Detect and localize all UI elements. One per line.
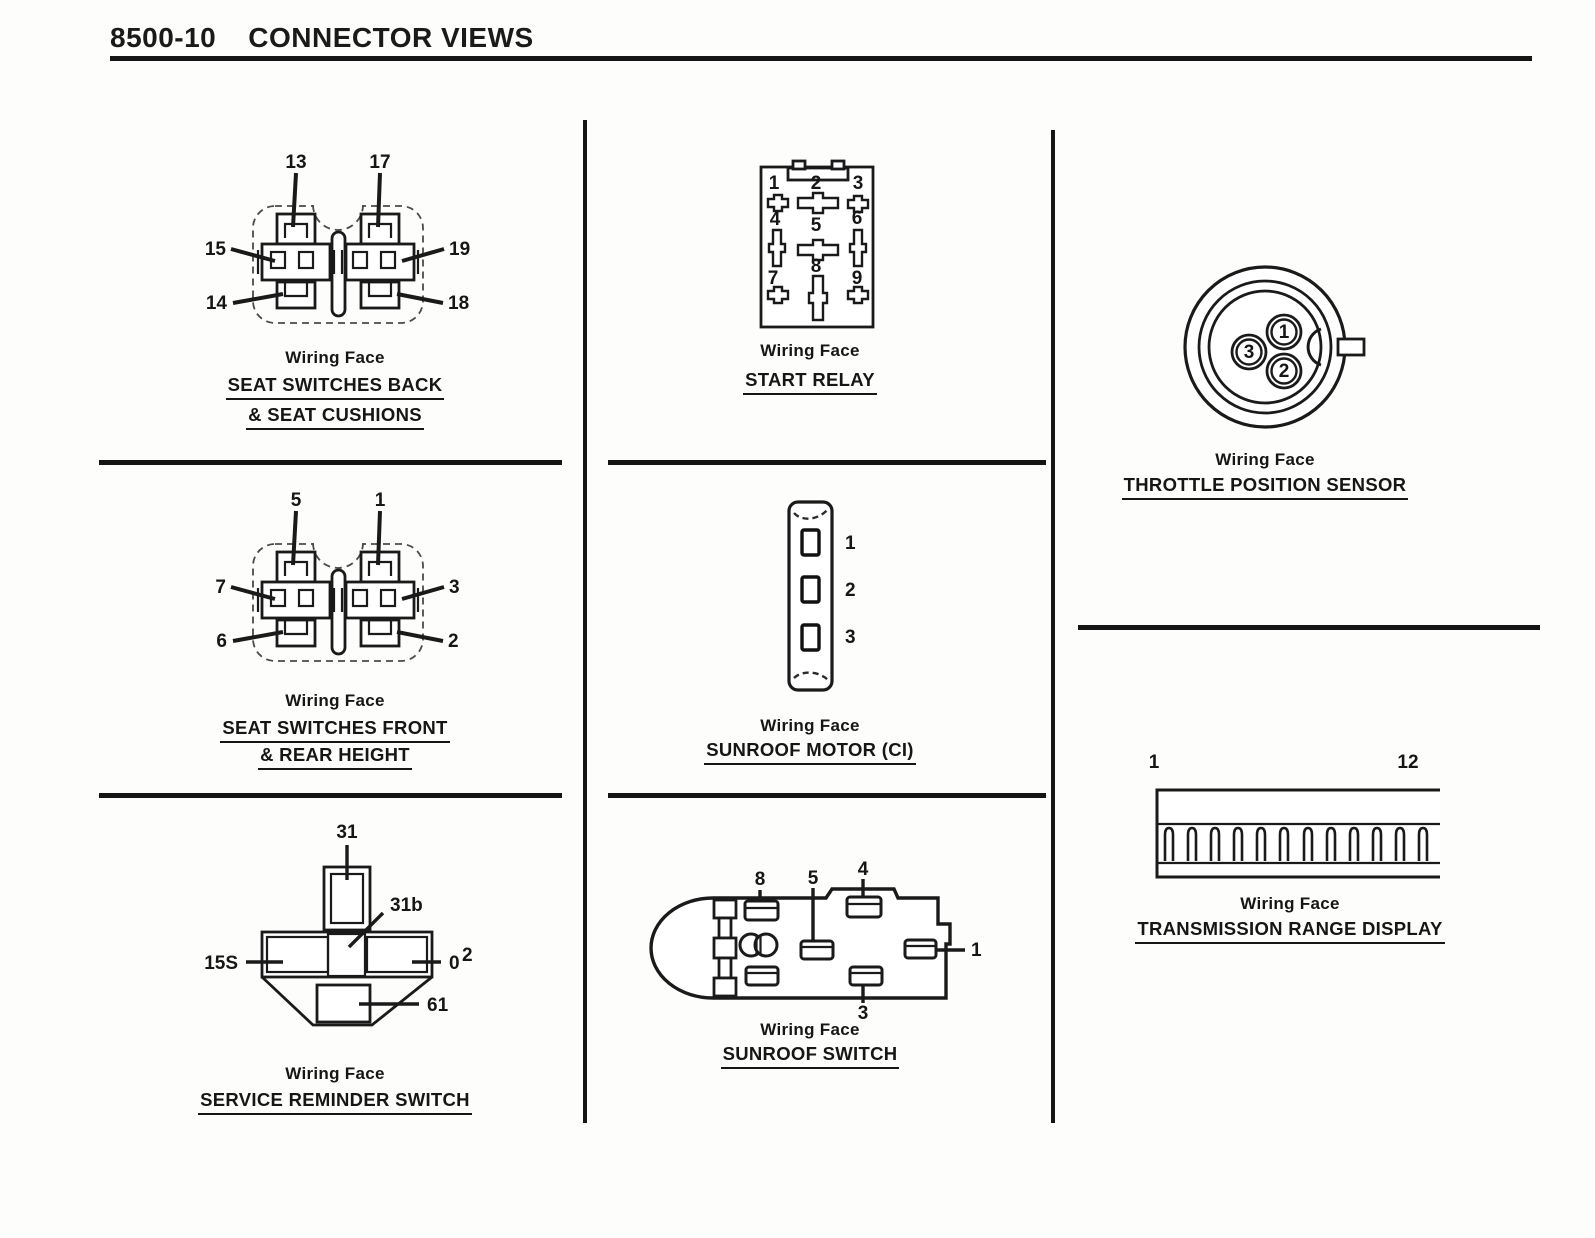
connector-title: SERVICE REMINDER SWITCH	[150, 1089, 520, 1111]
seat-switches-back-diagram: 13 17 15 19 14 18	[150, 140, 520, 350]
separator-col1-b	[99, 793, 562, 798]
connector-title-line2: & REAR HEIGHT	[150, 744, 520, 766]
connector-title-line2: & SEAT CUSHIONS	[150, 404, 520, 426]
pin-label: 6	[852, 208, 863, 229]
pin-label: 17	[369, 152, 390, 173]
pin-label: 5	[291, 490, 302, 511]
connector-title: SEAT SWITCHES FRONT	[150, 717, 520, 739]
title-text: START RELAY	[743, 369, 877, 395]
title-text: TRANSMISSION RANGE DISPLAY	[1135, 918, 1444, 944]
transmission-range-display-diagram: 1 12	[1130, 740, 1440, 890]
pin-label: 2	[448, 631, 459, 652]
pin-label: 19	[449, 239, 470, 260]
display-connector-body	[1157, 790, 1440, 877]
connector-drawing: 8 5 4 1 3	[620, 840, 1020, 1025]
section-number: 8500-10	[110, 22, 216, 53]
pin-label: 31b	[390, 895, 423, 916]
pin-label: 15	[205, 239, 227, 260]
wiring-face-label: Wiring Face	[1085, 450, 1445, 470]
pin-label: 18	[448, 293, 469, 314]
title-text: SUNROOF MOTOR (CI)	[704, 739, 916, 765]
connector-drawing: 1 2 3	[690, 480, 950, 715]
pin-label: 9	[852, 268, 863, 289]
separator-col2-a	[608, 460, 1046, 465]
title-text: SERVICE REMINDER SWITCH	[198, 1089, 472, 1115]
header-rule	[110, 56, 1532, 61]
pin-label: 7	[768, 268, 779, 289]
service-reminder-switch-diagram: 31 31b 15S 0 2 61	[150, 800, 520, 1045]
sunroof-switch-diagram: 8 5 4 1 3	[620, 840, 1020, 1030]
separator-col1-a	[99, 460, 562, 465]
pin-label: 1	[769, 173, 780, 194]
connector-drawing: 13 17 15 19 14 18	[150, 140, 520, 345]
wiring-face-label: Wiring Face	[660, 716, 960, 736]
connector-drawing: 31 31b 15S 0 2 61	[150, 800, 520, 1040]
pin-label: 4	[770, 209, 781, 230]
pin-label: 1	[375, 490, 386, 511]
connector-title: SUNROOF SWITCH	[620, 1043, 1000, 1065]
page-header: 8500-10CONNECTOR VIEWS	[110, 22, 534, 54]
pin-label: 5	[808, 868, 819, 889]
start-relay-diagram: 1 2 3 4 5 6 7 8 9	[695, 148, 925, 348]
title-text: SEAT SWITCHES BACK	[226, 374, 445, 400]
connector-drawing: 1 2 3 4 5 6 7 8 9	[695, 148, 925, 343]
wiring-face-label: Wiring Face	[695, 341, 925, 361]
pin-label: 13	[285, 152, 306, 173]
pin-label: 8	[755, 869, 766, 890]
connector-title: SUNROOF MOTOR (CI)	[660, 739, 960, 761]
page-title: CONNECTOR VIEWS	[248, 22, 533, 53]
title-text: THROTTLE POSITION SENSOR	[1122, 474, 1409, 500]
pin-label: 1	[845, 533, 856, 554]
pin-label: 2	[1279, 361, 1290, 382]
pin-label: 8	[811, 256, 822, 277]
title-text: & SEAT CUSHIONS	[246, 404, 424, 430]
terminal-slots	[802, 530, 819, 650]
wiring-face-label: Wiring Face	[150, 691, 520, 711]
sunroof-motor-diagram: 1 2 3	[690, 480, 950, 720]
pin-label-superscript: 2	[462, 945, 473, 966]
manual-page: 8500-10CONNECTOR VIEWS	[0, 0, 1595, 1238]
pin-label: 3	[845, 627, 856, 648]
wiring-face-label: Wiring Face	[1100, 894, 1480, 914]
pin-label: 1	[1279, 322, 1290, 343]
title-text: SUNROOF SWITCH	[721, 1043, 900, 1069]
pin-label: 15S	[204, 953, 238, 974]
pin-label: 4	[858, 859, 869, 880]
title-text: SEAT SWITCHES FRONT	[220, 717, 449, 743]
terminal-shapes	[262, 867, 432, 1025]
connector-drawing: 1 3 2	[1120, 250, 1420, 450]
pin-label: 61	[427, 995, 449, 1016]
connector-title: START RELAY	[695, 369, 925, 391]
pin-label: 6	[216, 631, 227, 652]
connector-title: THROTTLE POSITION SENSOR	[1085, 474, 1445, 496]
pin-label: 14	[206, 293, 228, 314]
wiring-face-label: Wiring Face	[150, 1064, 520, 1084]
connector-drawing: 1 12	[1130, 740, 1440, 885]
pin-label: 2	[845, 580, 856, 601]
pin-label: 7	[215, 577, 226, 598]
wiring-face-label: Wiring Face	[620, 1020, 1000, 1040]
pin-label: 3	[1244, 342, 1255, 363]
title-text: & REAR HEIGHT	[258, 744, 412, 770]
pin-label: 1	[971, 940, 982, 961]
pin-label: 2	[811, 173, 822, 194]
separator-col3	[1078, 625, 1540, 630]
connector-drawing: 5 1 7 3 6 2	[150, 478, 520, 683]
connector-title: TRANSMISSION RANGE DISPLAY	[1100, 918, 1480, 940]
pin-label: 1	[1149, 752, 1160, 773]
separator-col2-b	[608, 793, 1046, 798]
ladder-column	[714, 900, 736, 996]
pin-label: 31	[336, 822, 358, 843]
connector-title: SEAT SWITCHES BACK	[150, 374, 520, 396]
throttle-position-sensor-diagram: 1 3 2	[1120, 250, 1420, 455]
pin-label: 3	[449, 577, 460, 598]
pin-label: 3	[853, 173, 864, 194]
twin-circles	[740, 934, 777, 956]
pin-label: 5	[811, 215, 822, 236]
wiring-face-label: Wiring Face	[150, 348, 520, 368]
column-divider-right	[1051, 130, 1055, 1123]
column-divider-left	[583, 120, 587, 1123]
pin-label: 0	[449, 953, 460, 974]
pin-label: 12	[1397, 752, 1418, 773]
seat-switches-front-diagram: 5 1 7 3 6 2	[150, 478, 520, 688]
